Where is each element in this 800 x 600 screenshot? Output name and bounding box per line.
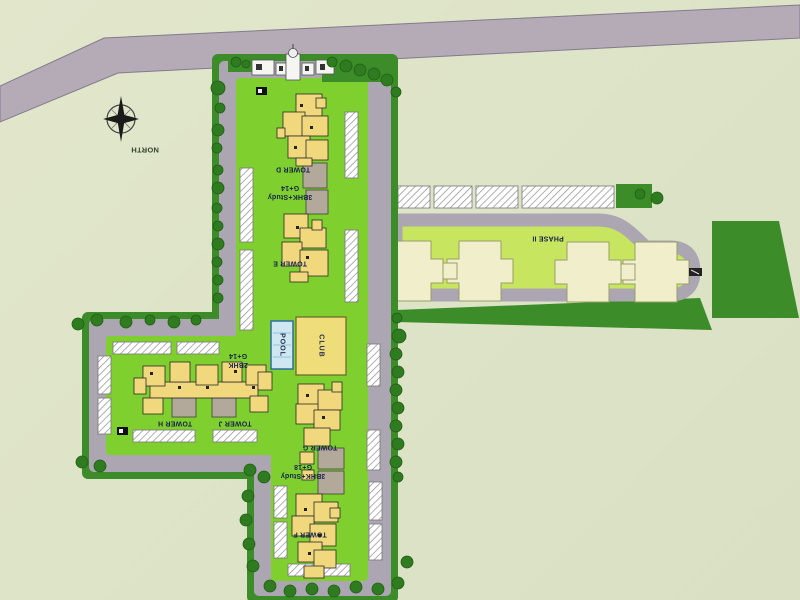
compass-icon	[103, 96, 139, 142]
site-map	[0, 0, 800, 600]
club-label: CLUB	[318, 334, 325, 357]
spec-gf-label: 3BHK+Study G+18	[281, 461, 326, 479]
tower-d-label: TOWER D	[276, 164, 310, 173]
pool-label: POOL	[279, 333, 286, 357]
phase2-label: PHASE II	[532, 233, 564, 242]
tower-h-label: TOWER H	[158, 418, 192, 427]
tower-e-label: TOWER E	[273, 258, 307, 267]
spec-de-label: 3BHK+Study G+14	[268, 182, 313, 200]
spec-hj-label: 2BHK G+14	[228, 350, 248, 368]
north-label: NORTH	[131, 145, 159, 154]
site-plan: NORTH TOWER D 3BHK+Study G+14 TOWER E PH…	[0, 0, 800, 600]
phase2-parking	[398, 186, 614, 208]
tower-j-label: TOWER J	[218, 418, 251, 427]
phase2-car-marker	[689, 268, 702, 276]
tower-f-label: TOWER F	[293, 529, 327, 538]
tower-g-label: TOWER G	[303, 442, 338, 451]
